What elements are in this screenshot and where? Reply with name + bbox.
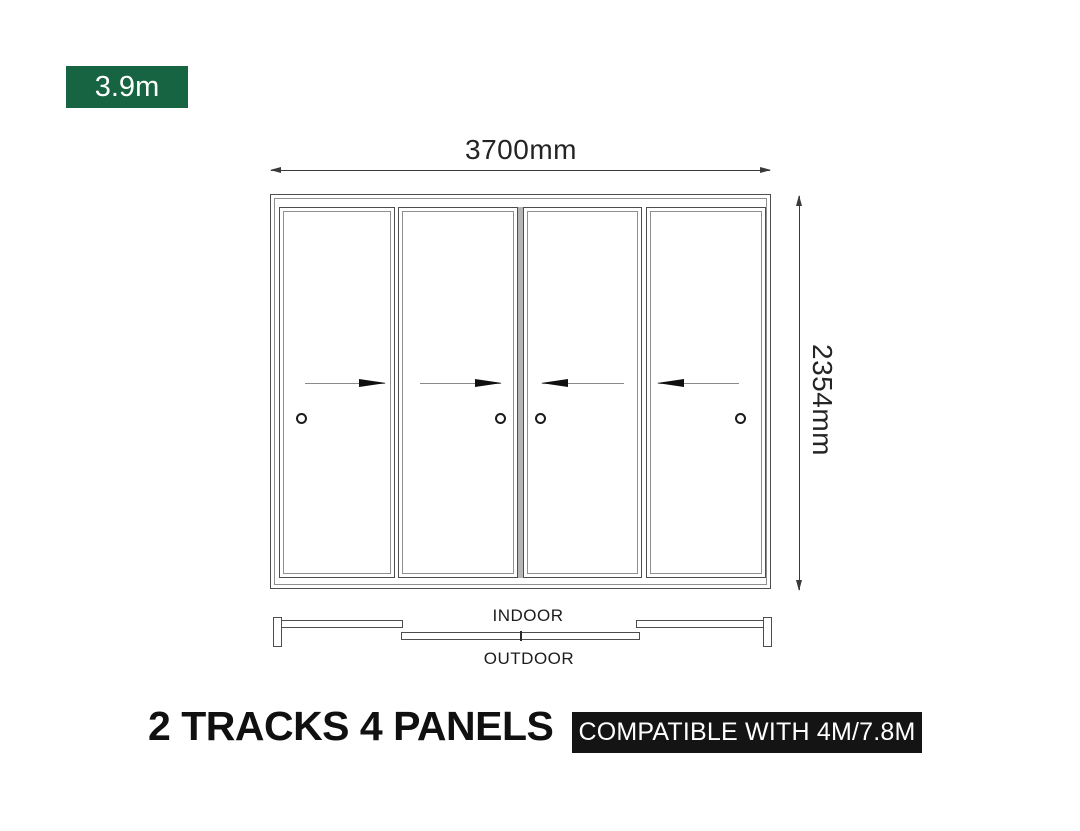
slide-arrow-left-icon bbox=[542, 379, 624, 388]
handle-knob-icon bbox=[296, 413, 307, 424]
arrow-head bbox=[475, 379, 502, 387]
slide-arrow-left-icon bbox=[658, 379, 739, 388]
track-end-cap-right bbox=[763, 617, 772, 647]
height-dimension-line bbox=[799, 196, 800, 590]
arrow-head bbox=[657, 379, 684, 387]
handle-knob-icon bbox=[735, 413, 746, 424]
slide-arrow-right-icon bbox=[420, 379, 501, 388]
dimension-arrow-up-icon bbox=[796, 195, 802, 206]
indoor-track-bar-left bbox=[281, 620, 403, 628]
height-dimension-label: 2354mm bbox=[806, 320, 838, 480]
size-badge: 3.9m bbox=[66, 66, 188, 108]
handle-knob-icon bbox=[495, 413, 506, 424]
door-panel-1 bbox=[279, 207, 395, 578]
indoor-track-bar-right bbox=[636, 620, 764, 628]
indoor-label: INDOOR bbox=[438, 606, 618, 626]
panel-2-glass bbox=[402, 211, 514, 574]
compatibility-badge-label: COMPATIBLE WITH 4M/7.8M bbox=[578, 718, 915, 747]
outdoor-label: OUTDOOR bbox=[439, 649, 619, 669]
width-dimension-label: 3700mm bbox=[421, 134, 621, 166]
door-panel-2 bbox=[398, 207, 518, 578]
center-meeting-stile bbox=[518, 207, 523, 578]
track-center-tick bbox=[520, 631, 522, 641]
page-title: 2 TRACKS 4 PANELS bbox=[148, 703, 558, 750]
arrow-head bbox=[541, 379, 568, 387]
handle-knob-icon bbox=[535, 413, 546, 424]
slide-arrow-right-icon bbox=[305, 379, 385, 388]
compatibility-badge: COMPATIBLE WITH 4M/7.8M bbox=[572, 712, 922, 753]
door-panel-3 bbox=[523, 207, 642, 578]
panel-3-glass bbox=[527, 211, 638, 574]
size-badge-label: 3.9m bbox=[95, 71, 159, 104]
panel-1-glass bbox=[283, 211, 391, 574]
width-dimension-line bbox=[271, 170, 770, 171]
dimension-arrow-left-icon bbox=[270, 167, 281, 173]
dimension-arrow-right-icon bbox=[760, 167, 771, 173]
panel-4-glass bbox=[650, 211, 762, 574]
door-panel-4 bbox=[646, 207, 766, 578]
arrow-head bbox=[359, 379, 386, 387]
diagram-canvas: 3.9m 3700mm 2354mm bbox=[0, 0, 1080, 831]
dimension-arrow-down-icon bbox=[796, 580, 802, 591]
